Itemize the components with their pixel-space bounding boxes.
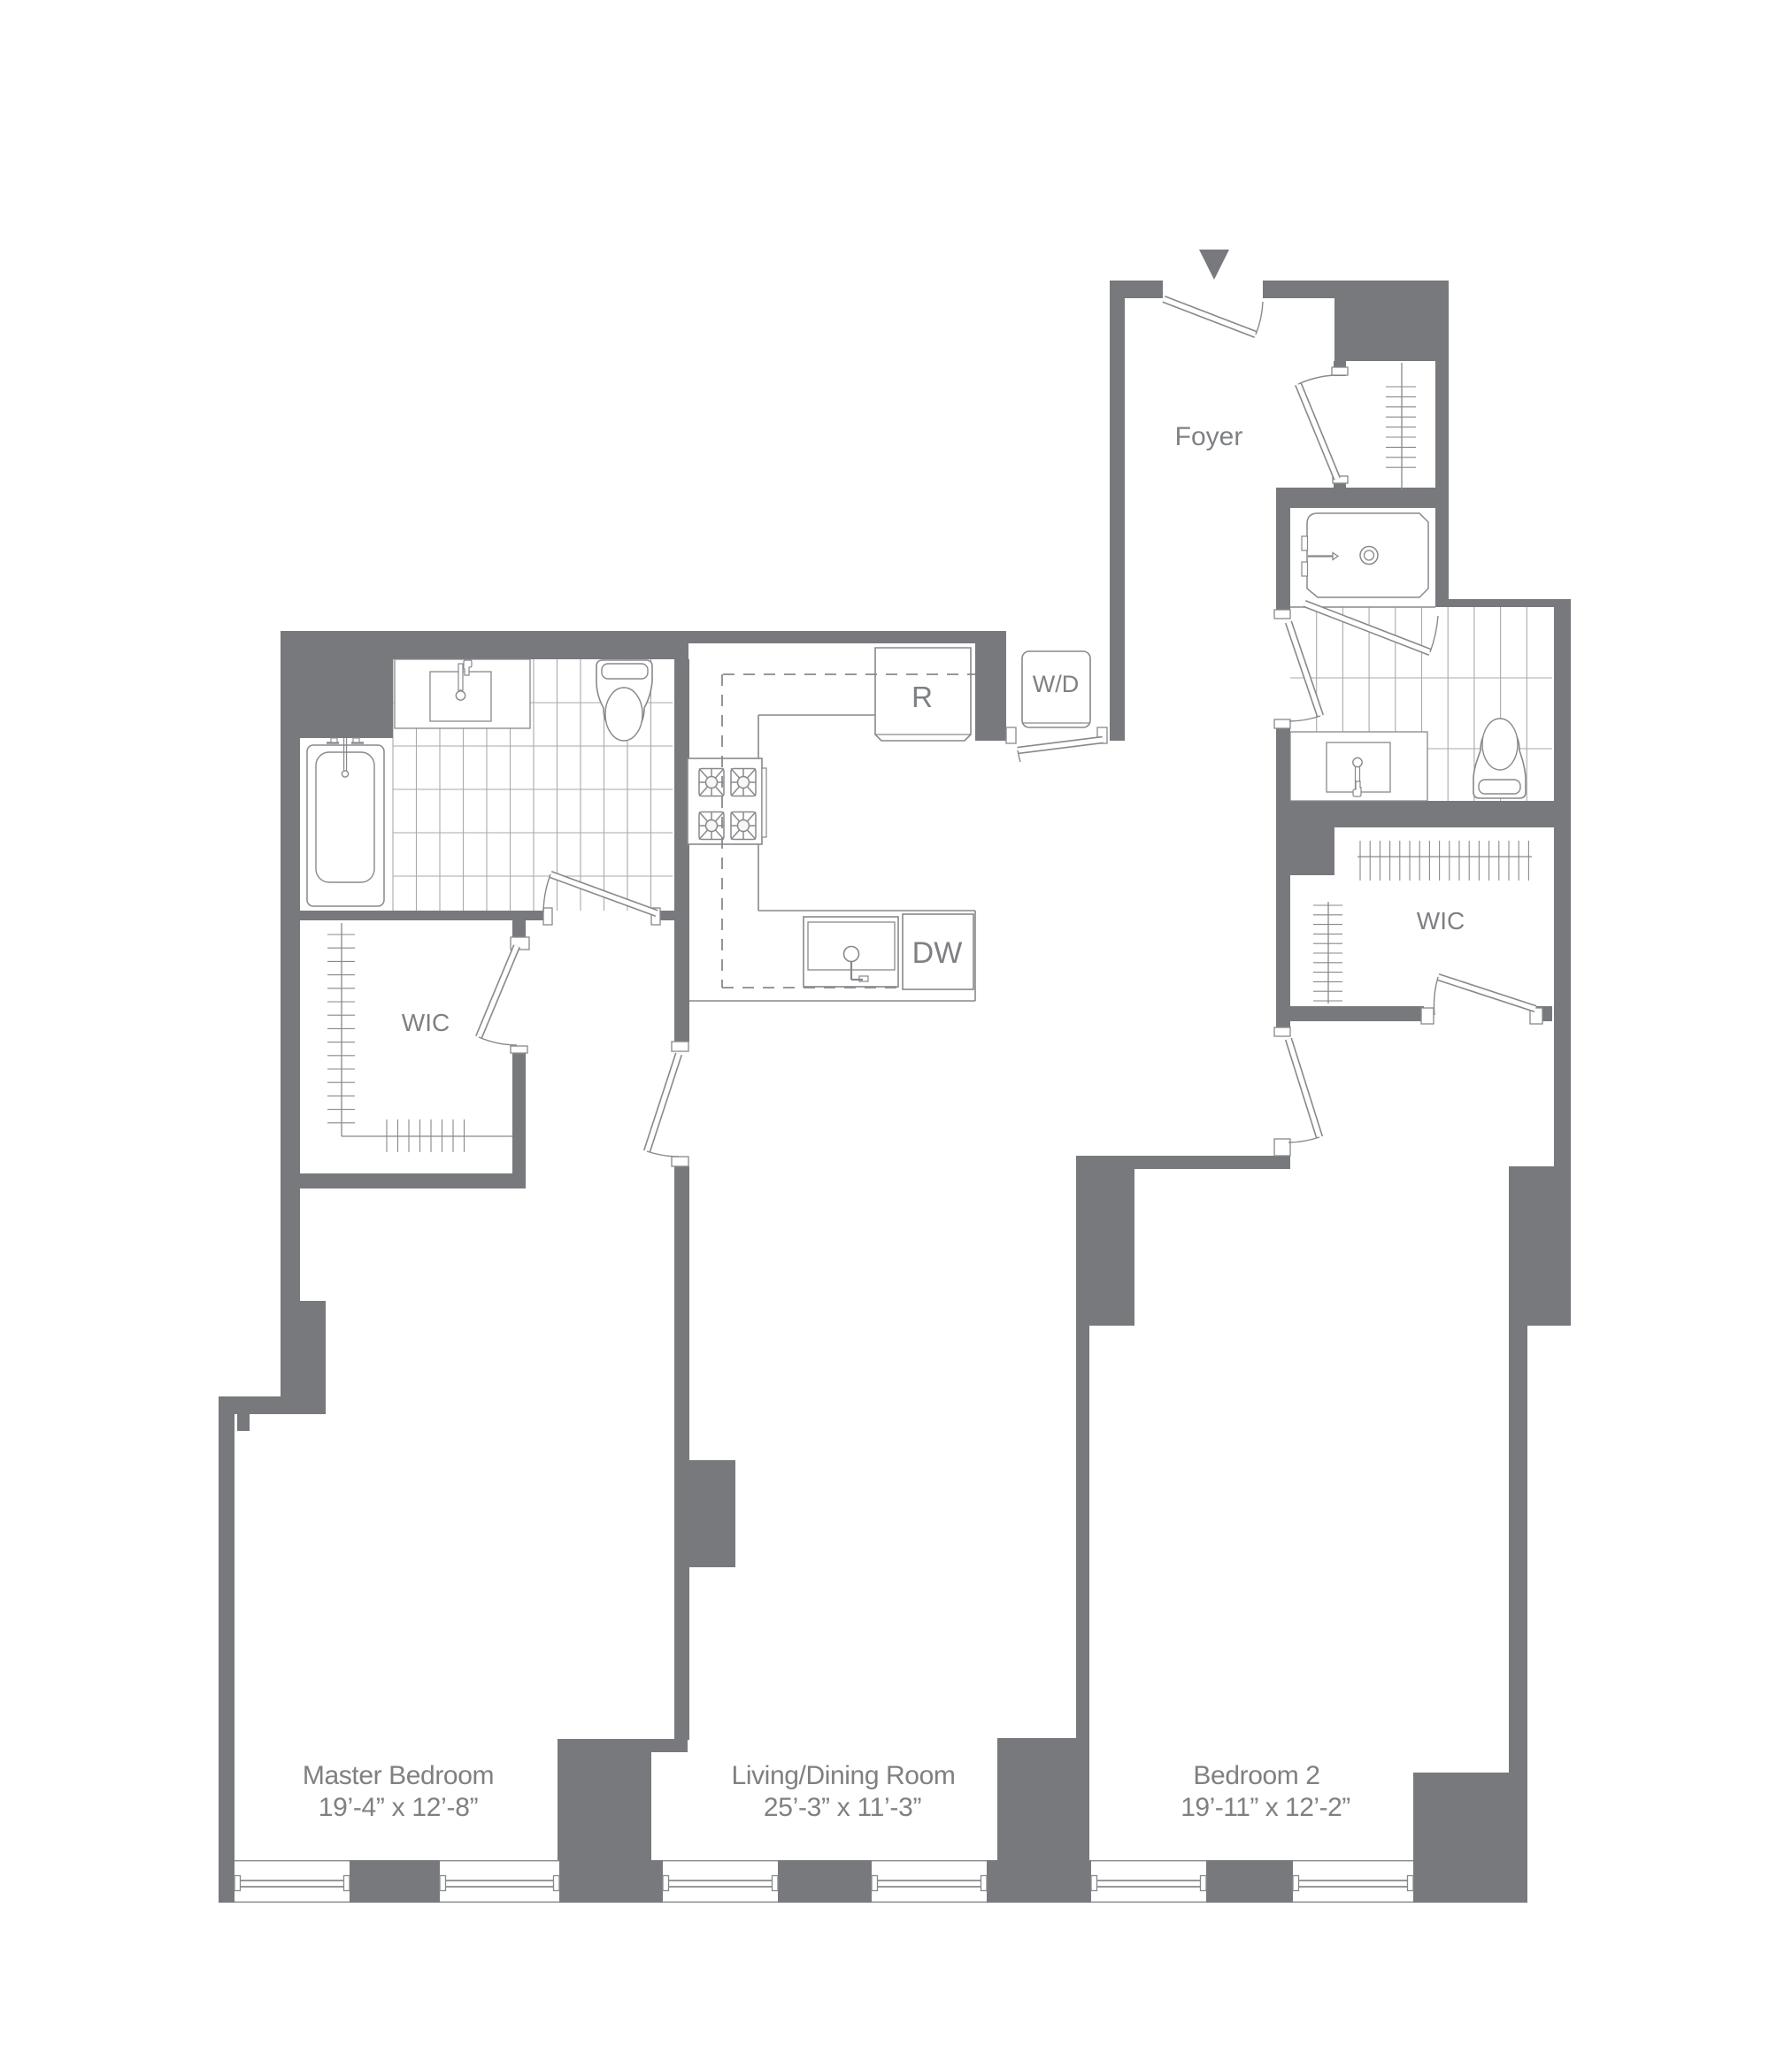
svg-text:WIC: WIC <box>1417 907 1465 935</box>
svg-text:19’-4” x 12’-8”: 19’-4” x 12’-8” <box>319 1793 479 1822</box>
svg-text:19’-11” x 12’-2”: 19’-11” x 12’-2” <box>1181 1793 1350 1822</box>
svg-text:W/D: W/D <box>1033 671 1079 697</box>
svg-text:DW: DW <box>912 936 963 970</box>
svg-text:R: R <box>911 681 933 713</box>
svg-text:Master Bedroom: Master Bedroom <box>303 1761 494 1790</box>
svg-text:Bedroom 2: Bedroom 2 <box>1193 1761 1319 1790</box>
svg-text:Living/Dining Room: Living/Dining Room <box>732 1761 956 1790</box>
svg-text:Foyer: Foyer <box>1175 422 1243 451</box>
svg-text:25’-3” x 11’-3”: 25’-3” x 11’-3” <box>764 1793 921 1822</box>
svg-text:WIC: WIC <box>402 1009 450 1036</box>
